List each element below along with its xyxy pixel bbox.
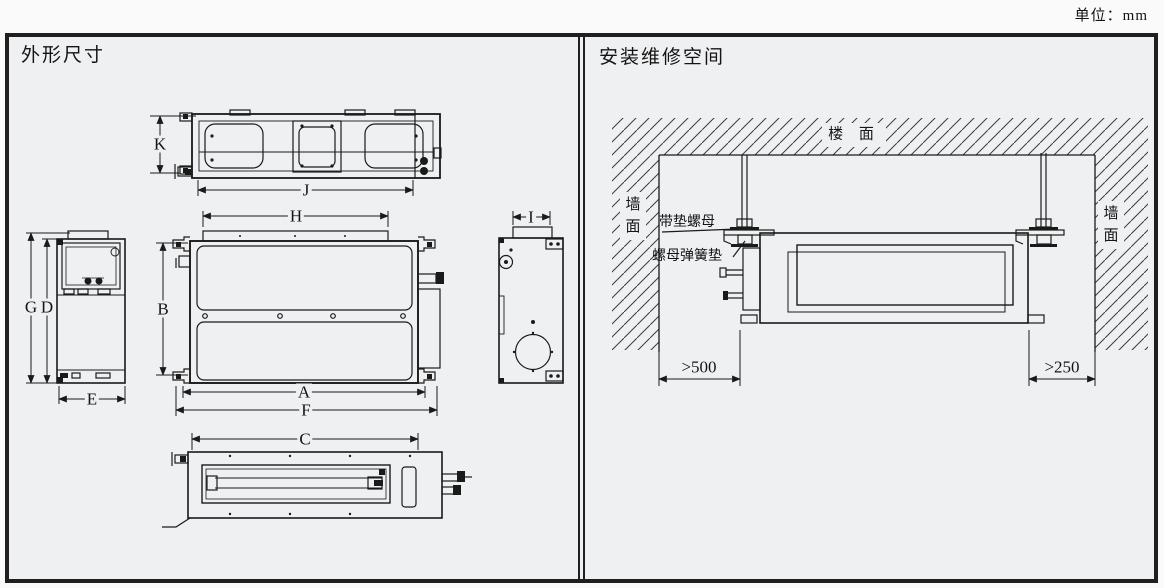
wall-right-label: 墙面 [1101, 204, 1121, 248]
side-view-left [57, 231, 125, 383]
diagram-art [0, 0, 1164, 588]
left-panel-title: 外形尺寸 [21, 40, 105, 67]
dim-label-J: J [301, 182, 312, 199]
dim-label-C: C [297, 431, 312, 448]
ceiling-label: 楼 面 [824, 125, 884, 145]
bottom-view [162, 452, 472, 527]
wall-left-label: 墙面 [623, 195, 643, 239]
unit-note: 单位：mm [1075, 4, 1148, 25]
install-structure [612, 118, 1148, 352]
right-panel-title: 安装维修空间 [599, 42, 725, 69]
dim-label-G: G [23, 299, 39, 316]
install-unit [662, 153, 1064, 323]
dim-label-A: A [296, 384, 312, 401]
dim-label-B: B [155, 301, 170, 318]
nut-washer-label: 带垫螺母 [659, 216, 715, 230]
side-view-right [499, 227, 563, 383]
top-view-dimensions [150, 116, 413, 196]
dim-label-H: H [288, 208, 304, 225]
front-view [173, 231, 444, 383]
dim-label-K: K [152, 136, 168, 153]
dim-label-I: I [526, 209, 536, 226]
top-view [175, 110, 441, 179]
dim-label-D: D [39, 299, 55, 316]
clearance-right-value: >250 [1043, 359, 1080, 376]
clearance-left-value: >500 [680, 359, 717, 376]
dim-label-F: F [299, 402, 312, 419]
technical-drawing-page: 单位：mm 外形尺寸 安装维修空间 K J H B A F G D E I C … [0, 0, 1164, 588]
nut-spring-washer-label: 螺母弹簧垫 [652, 250, 722, 264]
dim-label-E: E [85, 391, 99, 408]
sheet-frame [7, 35, 1156, 581]
install-dimensions [659, 330, 1095, 386]
